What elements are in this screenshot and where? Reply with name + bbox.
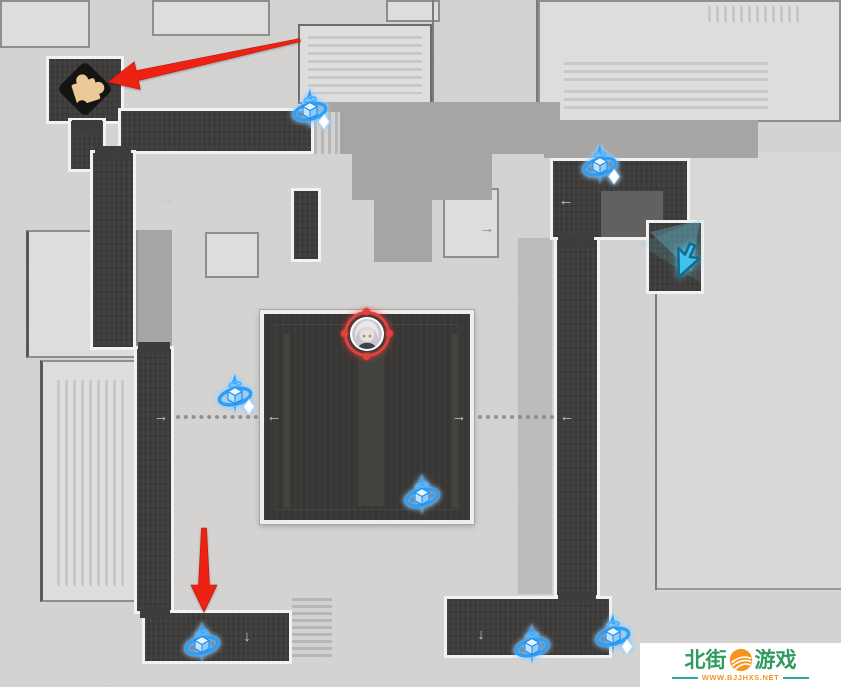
watermark-divider <box>672 677 698 679</box>
watermark-brand-right: 游戏 <box>755 650 797 671</box>
direction-arrow: ← <box>559 193 574 208</box>
direction-arrow: ← <box>267 409 282 424</box>
direction-arrow: ↓ <box>243 629 251 644</box>
enemy-marker[interactable] <box>510 622 554 670</box>
player-avatar <box>350 317 384 351</box>
dotted-path <box>478 415 554 419</box>
direction-arrow: → <box>160 192 175 207</box>
watermark-brand-left: 北街 <box>685 650 727 671</box>
watermark-url: WWW.BJJHXS.NET <box>702 673 780 682</box>
enemy-marker[interactable] <box>180 620 224 668</box>
enemy-marker[interactable] <box>591 611 635 659</box>
direction-arrow: → <box>154 409 169 424</box>
direction-arrow: ← <box>560 409 575 424</box>
ring-dot <box>386 330 393 337</box>
enemy-marker[interactable] <box>578 141 622 189</box>
ring-dot <box>341 330 348 337</box>
watermark: 北街 游戏 WWW.BJJHXS.NET <box>640 643 841 687</box>
enemy-marker[interactable] <box>288 86 332 134</box>
direction-arrow: ↓ <box>477 627 485 642</box>
watermark-divider <box>783 677 809 679</box>
dotted-path <box>176 415 258 419</box>
markers-layer: →→←→←→←↓↓ <box>0 0 841 687</box>
enemy-marker[interactable] <box>213 371 257 419</box>
enemy-marker[interactable] <box>400 472 444 520</box>
puzzle-piece-icon <box>61 65 109 113</box>
direction-arrow: → <box>480 221 495 236</box>
player-ring <box>344 311 390 357</box>
ring-dot <box>363 353 370 360</box>
game-map: →→←→←→←↓↓ 北街 游戏 WWW.BJJHXS.NET <box>0 0 841 687</box>
direction-arrow: → <box>452 409 467 424</box>
ring-dot <box>363 308 370 315</box>
watermark-logo-icon <box>729 648 753 672</box>
